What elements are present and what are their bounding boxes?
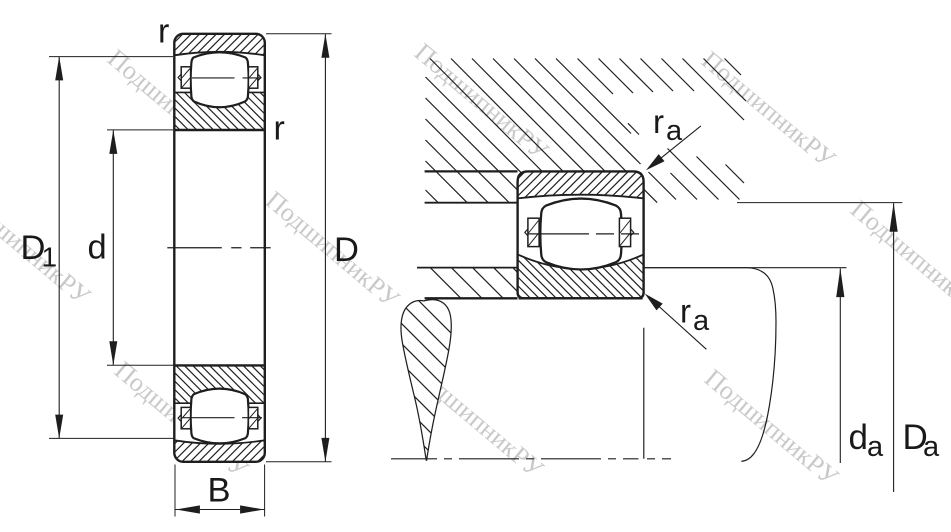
svg-text:B: B [208,472,231,510]
svg-text:ПодшипникРУ: ПодшипникРУ [699,363,844,492]
svg-text:ПодшипникРУ: ПодшипникРУ [260,185,405,314]
svg-text:d: d [88,228,107,266]
svg-text:d: d [849,418,868,457]
svg-text:a: a [867,431,884,463]
svg-text:a: a [693,305,710,337]
svg-text:r: r [653,103,664,140]
svg-text:ПодшипникРУ: ПодшипникРУ [696,45,841,174]
svg-text:D: D [334,231,359,269]
svg-text:r: r [274,110,285,148]
svg-text:1: 1 [42,242,58,273]
svg-text:a: a [923,431,940,463]
svg-text:ПодшипникРУ: ПодшипникРУ [845,194,951,323]
svg-text:ПодшипникРУ: ПодшипникРУ [409,37,554,166]
svg-text:r: r [158,12,169,50]
svg-text:a: a [666,115,683,147]
svg-text:r: r [680,293,691,330]
